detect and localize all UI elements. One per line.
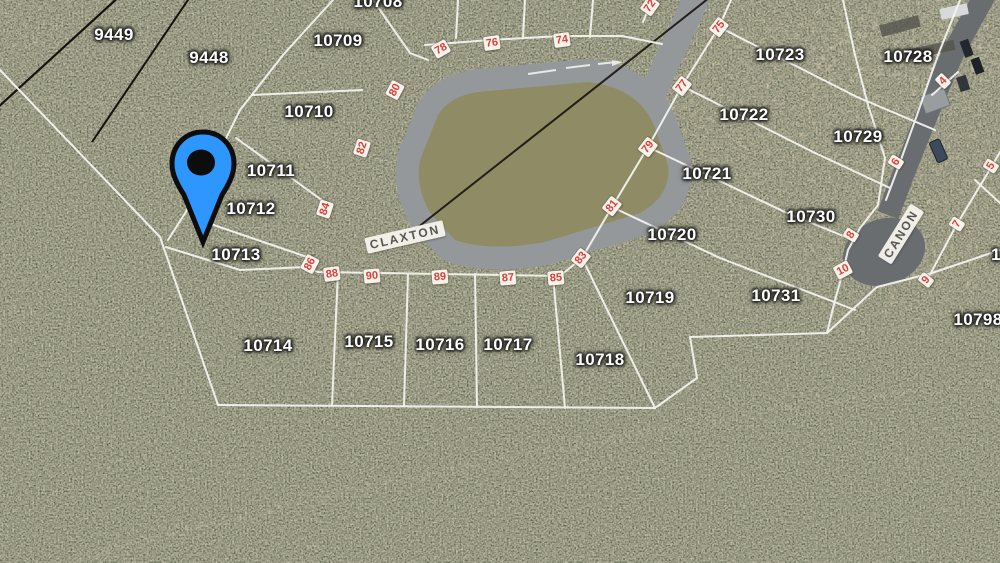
map-canvas[interactable]: 9449944810708107091071010711107121071310… [0,0,1000,563]
parcel-boundary-overlay [0,0,1000,563]
location-pin[interactable] [168,129,238,248]
parcel-lines [0,0,1000,408]
pin-body[interactable] [172,132,234,242]
pin-center-dot [187,150,215,176]
